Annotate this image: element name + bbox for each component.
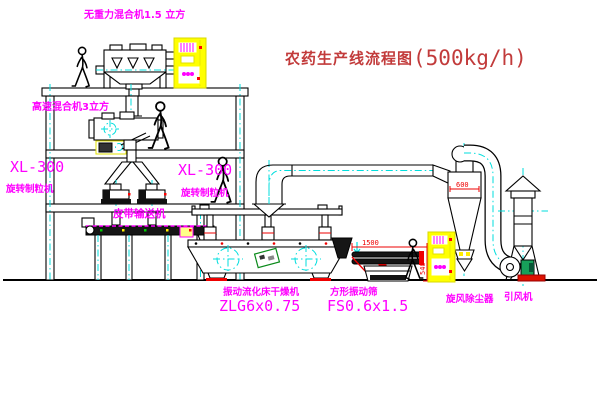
control-cabinet-top [174, 38, 206, 88]
granulator-left-model-label: XL-300 [10, 160, 64, 175]
granulator-left-name-label: 旋转制粒机 [6, 185, 54, 195]
granulator-right-name-label: 旋转制粒机 [181, 189, 229, 199]
top-mixer-label: 无重力混合机1.5 立方 [84, 11, 185, 22]
process-flow-diagram: 600 1500 [0, 0, 600, 403]
sieve-model-label: FS0.6x1.5 [327, 299, 408, 314]
sieve-length-dim: 1500 [362, 239, 379, 247]
control-cabinet-right [428, 232, 455, 282]
granulator-right-model-label: XL-300 [178, 163, 232, 178]
high-speed-mixer-label: 高速混合机3立方 [32, 103, 109, 114]
belt-conveyor-label: 皮带输送机 [113, 209, 166, 220]
dryer-model-label: ZLG6x0.75 [219, 299, 300, 314]
y-splitter-chute [105, 162, 159, 184]
fan-label: 引风机 [504, 293, 533, 303]
person-top-floor [72, 47, 89, 86]
title-text: 农药生产线流程图 [285, 50, 413, 68]
cyclone-label: 旋风除尘器 [446, 295, 494, 305]
gravity-free-mixer [96, 44, 178, 96]
cyclone-dim-text: 600 [456, 181, 469, 189]
title-capacity: (500kg/h) [413, 46, 527, 70]
diagram-title: 农药生产线流程图(500kg/h) [285, 46, 527, 70]
exhaust-duct [256, 165, 450, 204]
